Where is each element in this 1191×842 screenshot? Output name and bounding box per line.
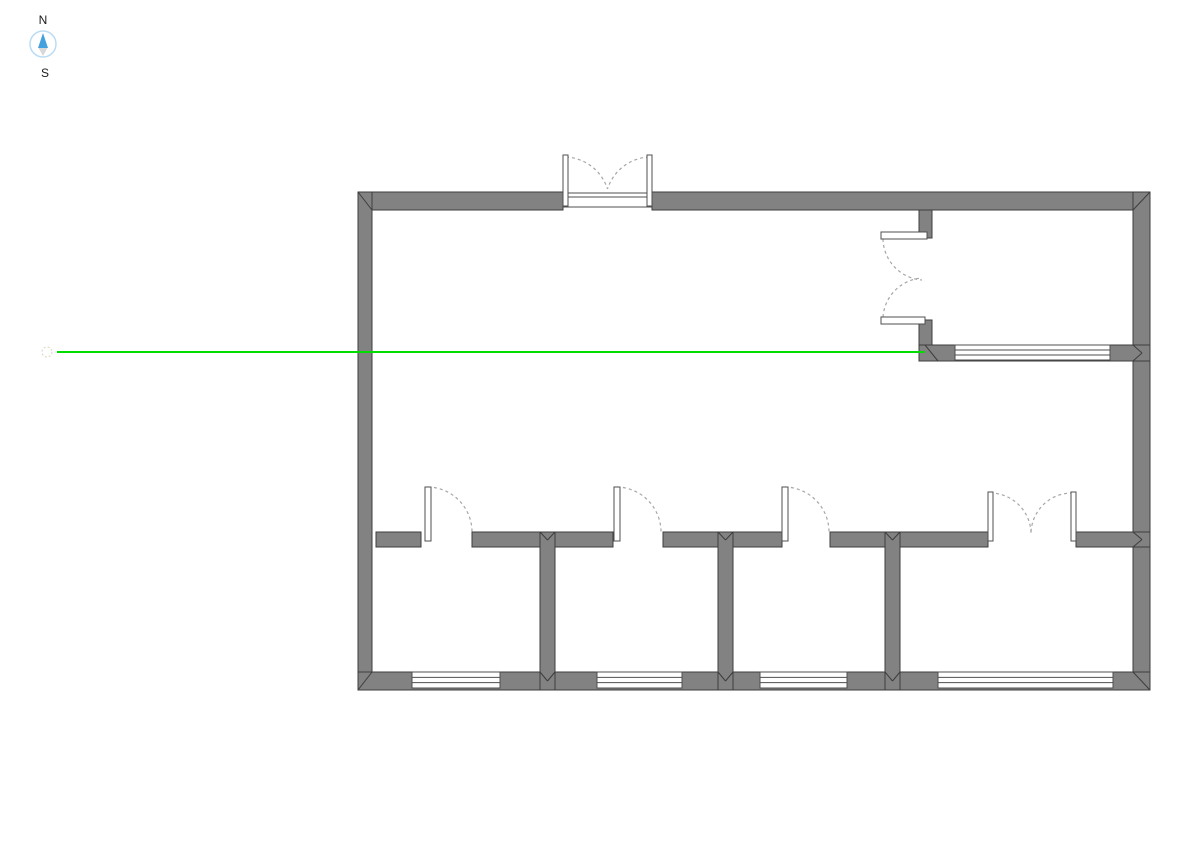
outer-wall-top-left[interactable] bbox=[358, 192, 563, 210]
compass[interactable]: NS bbox=[30, 13, 56, 80]
compass-north-label: N bbox=[39, 13, 48, 27]
window-bottom-4[interactable] bbox=[938, 672, 1113, 688]
window-right-room[interactable] bbox=[955, 345, 1110, 360]
room4-door-left-leaf[interactable] bbox=[988, 492, 993, 541]
annotation-layer bbox=[42, 347, 925, 357]
entrance-door-right-leaf[interactable] bbox=[647, 155, 652, 206]
floor-plan-canvas[interactable]: NS bbox=[0, 0, 1191, 842]
window-bottom-2[interactable] bbox=[597, 672, 682, 688]
entrance-door-right-swing bbox=[608, 157, 650, 189]
outer-wall-left[interactable] bbox=[358, 192, 372, 690]
reference-line-start-marker bbox=[42, 347, 52, 357]
interior-wall-mid-seg5[interactable] bbox=[1076, 532, 1150, 547]
interior-wall-mid-seg1[interactable] bbox=[376, 532, 421, 547]
window-bottom-1[interactable] bbox=[412, 672, 500, 688]
entrance-door-left-swing bbox=[566, 157, 608, 189]
room1-door-leaf[interactable] bbox=[425, 487, 431, 541]
right-room-door-top-leaf[interactable] bbox=[881, 232, 927, 239]
room3-door-swing bbox=[785, 487, 829, 532]
room4-door-right-swing bbox=[1031, 493, 1073, 533]
right-room-door-top-swing bbox=[883, 239, 922, 280]
outer-wall-right[interactable] bbox=[1133, 192, 1150, 690]
room2-door-swing bbox=[617, 487, 661, 532]
room1-door-swing bbox=[428, 487, 472, 532]
entrance-door-left-leaf[interactable] bbox=[563, 155, 568, 206]
drawing-stage: NS bbox=[0, 0, 1191, 842]
interior-wall-vertical-1[interactable] bbox=[540, 532, 555, 690]
interior-wall-mid-seg4[interactable] bbox=[830, 532, 988, 547]
interior-wall-vertical-2[interactable] bbox=[718, 532, 733, 690]
window-bottom-3[interactable] bbox=[760, 672, 847, 688]
interior-wall-vertical-3[interactable] bbox=[885, 532, 900, 690]
room2-door-leaf[interactable] bbox=[614, 487, 620, 541]
outer-wall-top-right[interactable] bbox=[652, 192, 1150, 210]
right-room-door-bottom-leaf[interactable] bbox=[881, 317, 925, 324]
entrance-door-sill bbox=[563, 193, 652, 207]
compass-south-label: S bbox=[41, 66, 49, 80]
room4-door-left-swing bbox=[990, 493, 1031, 533]
room3-door-leaf[interactable] bbox=[782, 487, 788, 541]
floor-plan-layer bbox=[358, 155, 1150, 690]
right-room-door-bottom-swing bbox=[883, 278, 922, 317]
room4-door-right-leaf[interactable] bbox=[1071, 492, 1076, 541]
